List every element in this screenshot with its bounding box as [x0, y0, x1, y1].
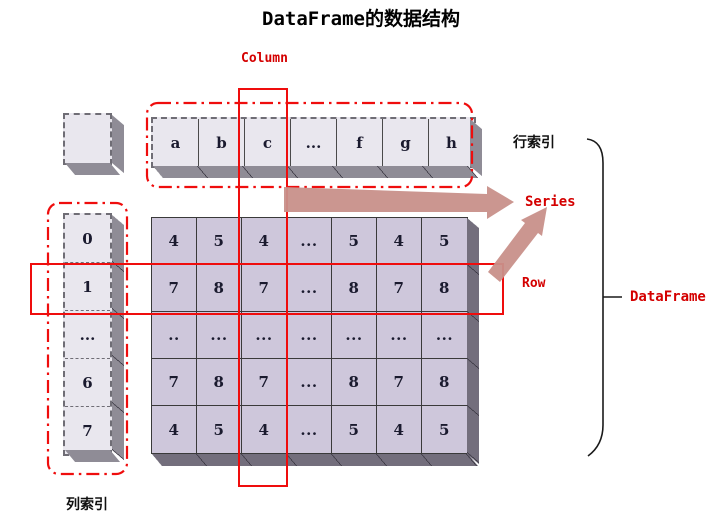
grid-cell: 5 [332, 406, 377, 453]
index-cell: 7 [65, 407, 110, 454]
row-highlight-rect [30, 263, 504, 315]
grid-cell: .. [152, 312, 197, 359]
grid-cell: 4 [377, 406, 422, 453]
dataframe-brace [587, 139, 603, 456]
label-column: Column [241, 51, 288, 66]
grid-cell: 5 [197, 406, 242, 453]
grid-cell: ... [332, 312, 377, 359]
grid-cell: 5 [422, 406, 467, 453]
label-series: Series [525, 194, 576, 210]
grid-cell: 7 [152, 359, 197, 406]
grid-cell: 8 [422, 359, 467, 406]
grid-cells: 454...545787...878....................78… [151, 217, 468, 454]
index-cell: 6 [65, 359, 110, 407]
grid-cell: ... [422, 312, 467, 359]
corner-empty-cube [63, 113, 112, 165]
header-cell: h [429, 119, 474, 166]
header-bottom-face [153, 166, 478, 178]
label-row: Row [522, 276, 545, 291]
grid-cell: 4 [152, 218, 197, 265]
grid-cell: 5 [197, 218, 242, 265]
page-title: DataFrame的数据结构 [0, 4, 722, 31]
header-cell: g [383, 119, 429, 166]
grid-right-face [467, 218, 479, 464]
grid-cell: 7 [377, 359, 422, 406]
corner-cube-top-face [63, 113, 112, 165]
corner-cube-right-face [112, 115, 124, 173]
data-grid: 454...545787...878....................78… [151, 217, 468, 454]
grid-cell: 4 [152, 406, 197, 453]
grid-cell: ... [287, 312, 332, 359]
series-arrow [284, 186, 514, 219]
index-bottom-face [65, 450, 120, 462]
index-right-face [112, 215, 124, 460]
label-col-index: 列索引 [66, 494, 108, 514]
index-cells: 01...67 [63, 213, 112, 456]
grid-cell: ... [377, 312, 422, 359]
grid-cell: 5 [422, 218, 467, 265]
grid-cell: 4 [377, 218, 422, 265]
grid-bottom-face [152, 454, 478, 466]
corner-cube-bottom-face [65, 163, 120, 175]
header-cell: ... [291, 119, 337, 166]
header-cells: abc...fgh [151, 117, 476, 168]
grid-cell: 8 [197, 359, 242, 406]
grid-cell: ... [197, 312, 242, 359]
header-cell: f [337, 119, 383, 166]
header-cell: a [153, 119, 199, 166]
grid-cell: 5 [332, 218, 377, 265]
row-index-column: 01...67 [63, 213, 112, 456]
index-cell: ... [65, 311, 110, 359]
grid-cell: ... [287, 406, 332, 453]
grid-cell: ... [287, 218, 332, 265]
grid-cell: 8 [332, 359, 377, 406]
index-cell: 0 [65, 215, 110, 263]
column-header-row: abc...fgh [151, 117, 476, 168]
label-row-index: 行索引 [513, 132, 555, 152]
label-dataframe: DataFrame [630, 289, 706, 305]
dataframe-structure-diagram: DataFrame的数据结构 abc...fgh 01...67 454...5… [0, 0, 722, 521]
header-right-face [470, 119, 482, 176]
grid-cell: ... [287, 359, 332, 406]
